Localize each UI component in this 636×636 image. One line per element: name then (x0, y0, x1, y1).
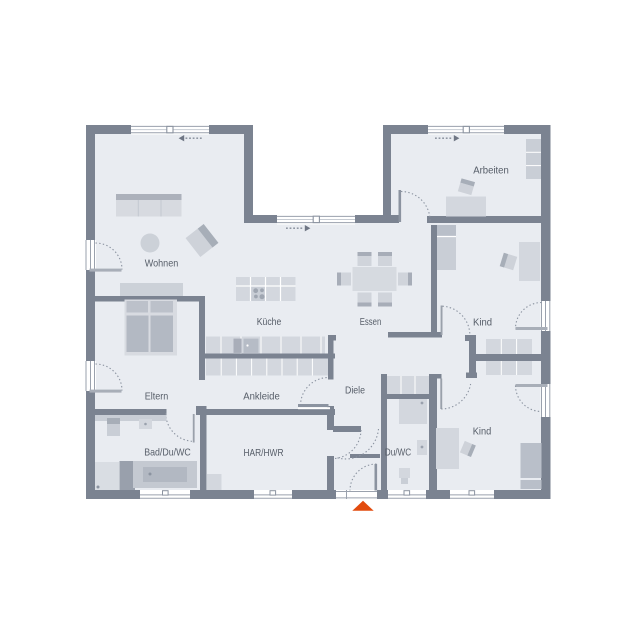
svg-text:Arbeiten: Arbeiten (473, 165, 509, 176)
svg-text:Eltern: Eltern (145, 392, 169, 403)
svg-text:Küche: Küche (257, 317, 282, 328)
svg-text:Essen: Essen (360, 317, 382, 328)
svg-text:Ankleide: Ankleide (243, 391, 280, 402)
svg-text:Du/WC: Du/WC (385, 448, 412, 459)
svg-text:Diele: Diele (345, 386, 365, 397)
svg-text:Kind: Kind (473, 317, 492, 328)
svg-text:Kind: Kind (473, 426, 492, 437)
svg-text:HAR/HWR: HAR/HWR (244, 448, 284, 459)
svg-text:Wohnen: Wohnen (145, 259, 179, 270)
svg-text:Bad/Du/WC: Bad/Du/WC (144, 448, 191, 459)
